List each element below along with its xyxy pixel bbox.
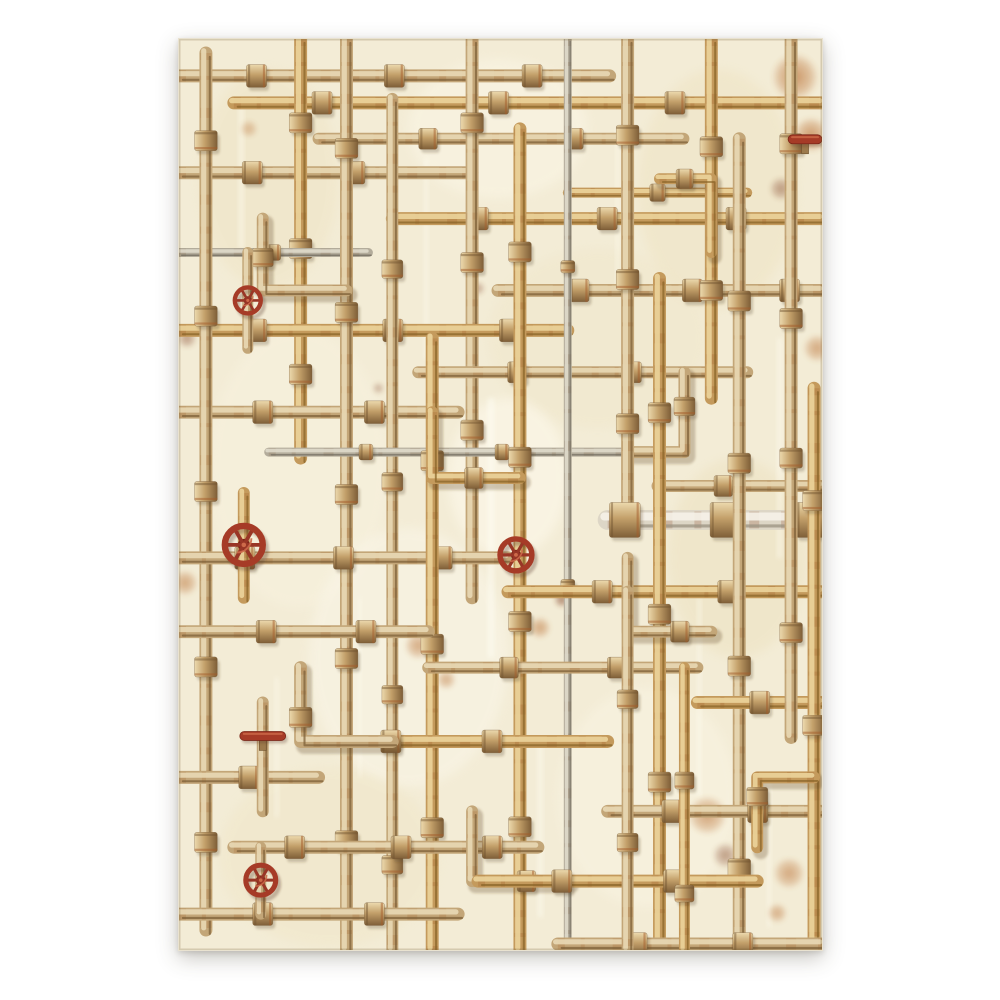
coupling-ridge — [780, 150, 803, 152]
coupling-ridge — [381, 903, 383, 926]
rust-stain — [773, 857, 805, 889]
coupling-ridge — [479, 468, 481, 489]
coupling-ridge — [505, 92, 507, 115]
coupling-ridge — [781, 279, 783, 302]
coupling-ridge — [382, 487, 403, 489]
coupling-ridge — [599, 207, 601, 230]
coupling-ridge — [515, 657, 517, 678]
coupling-ridge — [637, 502, 639, 537]
coupling-ridge — [509, 362, 511, 383]
coupling-ridge — [685, 621, 687, 642]
lever-highlight — [243, 733, 283, 735]
coupling-ridge — [366, 903, 368, 926]
coupling-ridge — [461, 129, 484, 131]
coupling-ridge — [728, 307, 751, 309]
coupling-ridge — [244, 161, 246, 184]
coupling-ridge — [803, 732, 822, 734]
coupling-ridge — [674, 399, 695, 401]
coupling-ridge — [485, 207, 487, 230]
coupling-ridge — [648, 419, 671, 421]
coupling-ridge — [803, 492, 822, 494]
drip-streak — [488, 398, 494, 657]
coupling-ridge — [509, 449, 532, 451]
coupling-ridge — [382, 687, 403, 689]
valve-hub-highlight — [514, 553, 518, 557]
coupling-ridge — [716, 476, 718, 497]
decorative-paper-sheet — [178, 38, 823, 951]
coupling-ridge — [780, 325, 803, 327]
coupling-ridge — [461, 114, 484, 116]
coupling-ridge — [666, 92, 668, 115]
coupling-ridge — [195, 673, 218, 675]
coupling-ridge — [681, 92, 683, 115]
coupling-ridge — [289, 381, 312, 383]
coupling-ridge — [617, 705, 638, 707]
coupling-ridge — [675, 774, 694, 776]
coupling-ridge — [509, 833, 532, 835]
coupling-ridge — [240, 766, 242, 789]
coupling-ridge — [553, 870, 555, 893]
coupling-ridge — [461, 269, 484, 271]
coupling-ridge — [335, 547, 337, 570]
coupling-ridge — [585, 279, 587, 302]
pipes-artwork — [179, 39, 822, 950]
coupling-ridge — [509, 258, 532, 260]
coupling-ridge — [335, 155, 358, 157]
coupling-ridge — [382, 261, 403, 263]
coupling-ridge — [509, 613, 532, 615]
coupling-ridge — [386, 65, 388, 88]
coupling-ridge — [421, 834, 444, 836]
coupling-ridge — [466, 468, 468, 489]
coupling-ridge — [766, 691, 768, 714]
coupling-ridge — [263, 65, 265, 88]
coupling-ridge — [407, 836, 409, 859]
coupling-ridge — [561, 262, 575, 264]
coupling-ridge — [509, 464, 532, 466]
coupling-ridge — [350, 547, 352, 570]
coupling-ridge — [728, 470, 751, 472]
coupling-ridge — [401, 65, 403, 88]
lever-bar — [788, 135, 822, 144]
coupling-ridge — [594, 580, 596, 603]
valve-handwheel — [498, 537, 534, 575]
product-photo-canvas — [0, 0, 1000, 1000]
coupling-ridge — [381, 401, 383, 424]
coupling-ridge — [538, 65, 540, 88]
coupling-ridge — [509, 243, 532, 245]
coupling-ridge — [289, 114, 312, 116]
coupling-ridge — [749, 933, 751, 950]
coupling-ridge — [665, 870, 667, 893]
coupling-ridge — [286, 836, 288, 859]
coupling-ridge — [449, 547, 451, 570]
lever-highlight — [791, 136, 819, 138]
valve-hub-highlight — [259, 878, 263, 882]
pipe-tan — [261, 701, 267, 816]
coupling-ridge — [509, 628, 532, 630]
coupling-ridge — [678, 169, 680, 188]
coupling-ridge — [524, 65, 526, 88]
coupling-ridge — [719, 580, 721, 603]
coupling-ridge — [420, 128, 422, 149]
coupling-ridge — [747, 789, 768, 791]
coupling-ridge — [254, 401, 256, 424]
coupling-ridge — [461, 254, 484, 256]
coupling-ridge — [335, 650, 358, 652]
coupling-ridge — [382, 870, 403, 872]
coupling-ridge — [289, 366, 312, 368]
coupling-ridge — [700, 138, 723, 140]
coupling-ridge — [617, 691, 638, 693]
coupling-ridge — [614, 207, 616, 230]
coupling-ridge — [360, 444, 362, 460]
coupling-ridge — [501, 319, 503, 342]
coupling-ridge — [780, 464, 803, 466]
coupling-ridge — [728, 860, 751, 862]
coupling-ridge — [611, 502, 613, 537]
coupling-ridge — [780, 450, 803, 452]
coupling-ridge — [335, 486, 358, 488]
coupling-ridge — [780, 624, 803, 626]
coupling-ridge — [498, 730, 500, 753]
coupling-ridge — [195, 322, 218, 324]
coupling-ridge — [195, 147, 218, 149]
rust-stain — [767, 903, 787, 923]
coupling-ridge — [616, 415, 639, 417]
coupling-ridge — [335, 832, 358, 834]
coupling-ridge — [648, 621, 671, 623]
coupling-ridge — [728, 672, 751, 674]
coupling-ridge — [484, 836, 486, 859]
coupling-ridge — [728, 292, 751, 294]
coupling-ridge — [490, 92, 492, 115]
coupling-ridge — [728, 455, 751, 457]
coupling-ridge — [747, 802, 768, 804]
coupling-ridge — [561, 269, 575, 271]
coupling-ridge — [616, 286, 639, 288]
coupling-ridge — [497, 444, 499, 460]
coupling-ridge — [609, 657, 611, 678]
coupling-ridge — [648, 606, 671, 608]
coupling-ridge — [616, 127, 639, 129]
coupling-ridge — [335, 140, 358, 142]
coupling-ridge — [675, 887, 694, 889]
coupling-ridge — [273, 620, 275, 643]
coupling-ridge — [580, 128, 582, 149]
coupling-ridge — [648, 404, 671, 406]
coupling-ridge — [335, 319, 358, 321]
coupling-ridge — [301, 836, 303, 859]
coupling-ridge — [780, 639, 803, 641]
coupling-ridge — [728, 207, 730, 230]
coupling-ridge — [712, 502, 714, 537]
coupling-ridge — [328, 92, 330, 115]
coupling-ridge — [369, 444, 371, 460]
coupling-ridge — [675, 898, 694, 900]
coupling-ridge — [314, 92, 316, 115]
coupling-ridge — [421, 651, 444, 653]
drip-streak — [275, 678, 279, 818]
coupling-ridge — [461, 437, 484, 439]
coupling-ridge — [663, 800, 665, 823]
coupling-ridge — [195, 498, 218, 500]
coupling-ridge — [501, 657, 503, 678]
coupling-ridge — [700, 153, 723, 155]
coupling-ridge — [609, 580, 611, 603]
coupling-ridge — [382, 275, 403, 277]
coupling-ridge — [335, 501, 358, 503]
coupling-ridge — [751, 691, 753, 714]
coupling-ridge — [648, 788, 671, 790]
coupling-ridge — [780, 310, 803, 312]
coupling-ridge — [195, 132, 218, 134]
coupling-ridge — [672, 621, 674, 642]
coupling-ridge — [616, 271, 639, 273]
pipe-coupling — [609, 502, 640, 537]
coupling-ridge — [382, 474, 403, 476]
valve-handwheel — [223, 524, 266, 568]
coupling-ridge — [335, 304, 358, 306]
coupling-ridge — [195, 308, 218, 310]
coupling-ridge — [700, 282, 723, 284]
coupling-ridge — [616, 430, 639, 432]
coupling-ridge — [357, 620, 359, 643]
coupling-ridge — [616, 142, 639, 144]
coupling-ridge — [499, 836, 501, 859]
coupling-ridge — [689, 169, 691, 188]
coupling-ridge — [803, 507, 822, 509]
coupling-ridge — [728, 658, 751, 660]
coupling-ridge — [651, 184, 653, 201]
coupling-ridge — [617, 848, 638, 850]
coupling-ridge — [277, 245, 279, 261]
coupling-ridge — [675, 785, 694, 787]
coupling-ridge — [561, 581, 575, 583]
coupling-ridge — [382, 700, 403, 702]
coupling-ridge — [335, 665, 358, 667]
coupling-ridge — [568, 870, 570, 893]
coupling-ridge — [366, 401, 368, 424]
coupling-ridge — [729, 476, 731, 497]
coupling-ridge — [195, 849, 218, 851]
coupling-ridge — [483, 730, 485, 753]
coupling-ridge — [289, 129, 312, 131]
coupling-ridge — [505, 444, 507, 460]
coupling-ridge — [259, 161, 261, 184]
coupling-ridge — [195, 658, 218, 660]
coupling-ridge — [393, 836, 395, 859]
valve-handwheel — [244, 864, 278, 899]
coupling-ridge — [263, 319, 265, 342]
coupling-ridge — [434, 128, 436, 149]
coupling-ridge — [289, 724, 312, 726]
coupling-ridge — [684, 279, 686, 302]
coupling-ridge — [421, 819, 444, 821]
coupling-ridge — [734, 933, 736, 950]
coupling-ridge — [384, 319, 386, 342]
coupling-ridge — [674, 412, 695, 414]
lever-bar — [240, 731, 286, 740]
valve-hub-highlight — [246, 299, 249, 302]
coupling-ridge — [248, 65, 250, 88]
coupling-ridge — [372, 620, 374, 643]
coupling-ridge — [803, 717, 822, 719]
rust-stain — [372, 382, 384, 394]
coupling-ridge — [361, 161, 363, 184]
coupling-ridge — [648, 774, 671, 776]
coupling-ridge — [643, 933, 645, 950]
coupling-ridge — [269, 401, 271, 424]
coupling-ridge — [700, 297, 723, 299]
coupling-ridge — [509, 818, 532, 820]
coupling-ridge — [258, 620, 260, 643]
coupling-ridge — [617, 835, 638, 837]
coupling-ridge — [289, 709, 312, 711]
coupling-ridge — [195, 834, 218, 836]
rust-stain — [240, 120, 258, 138]
coupling-ridge — [195, 483, 218, 485]
coupling-ridge — [289, 240, 312, 242]
valve-hub-highlight — [242, 543, 247, 548]
